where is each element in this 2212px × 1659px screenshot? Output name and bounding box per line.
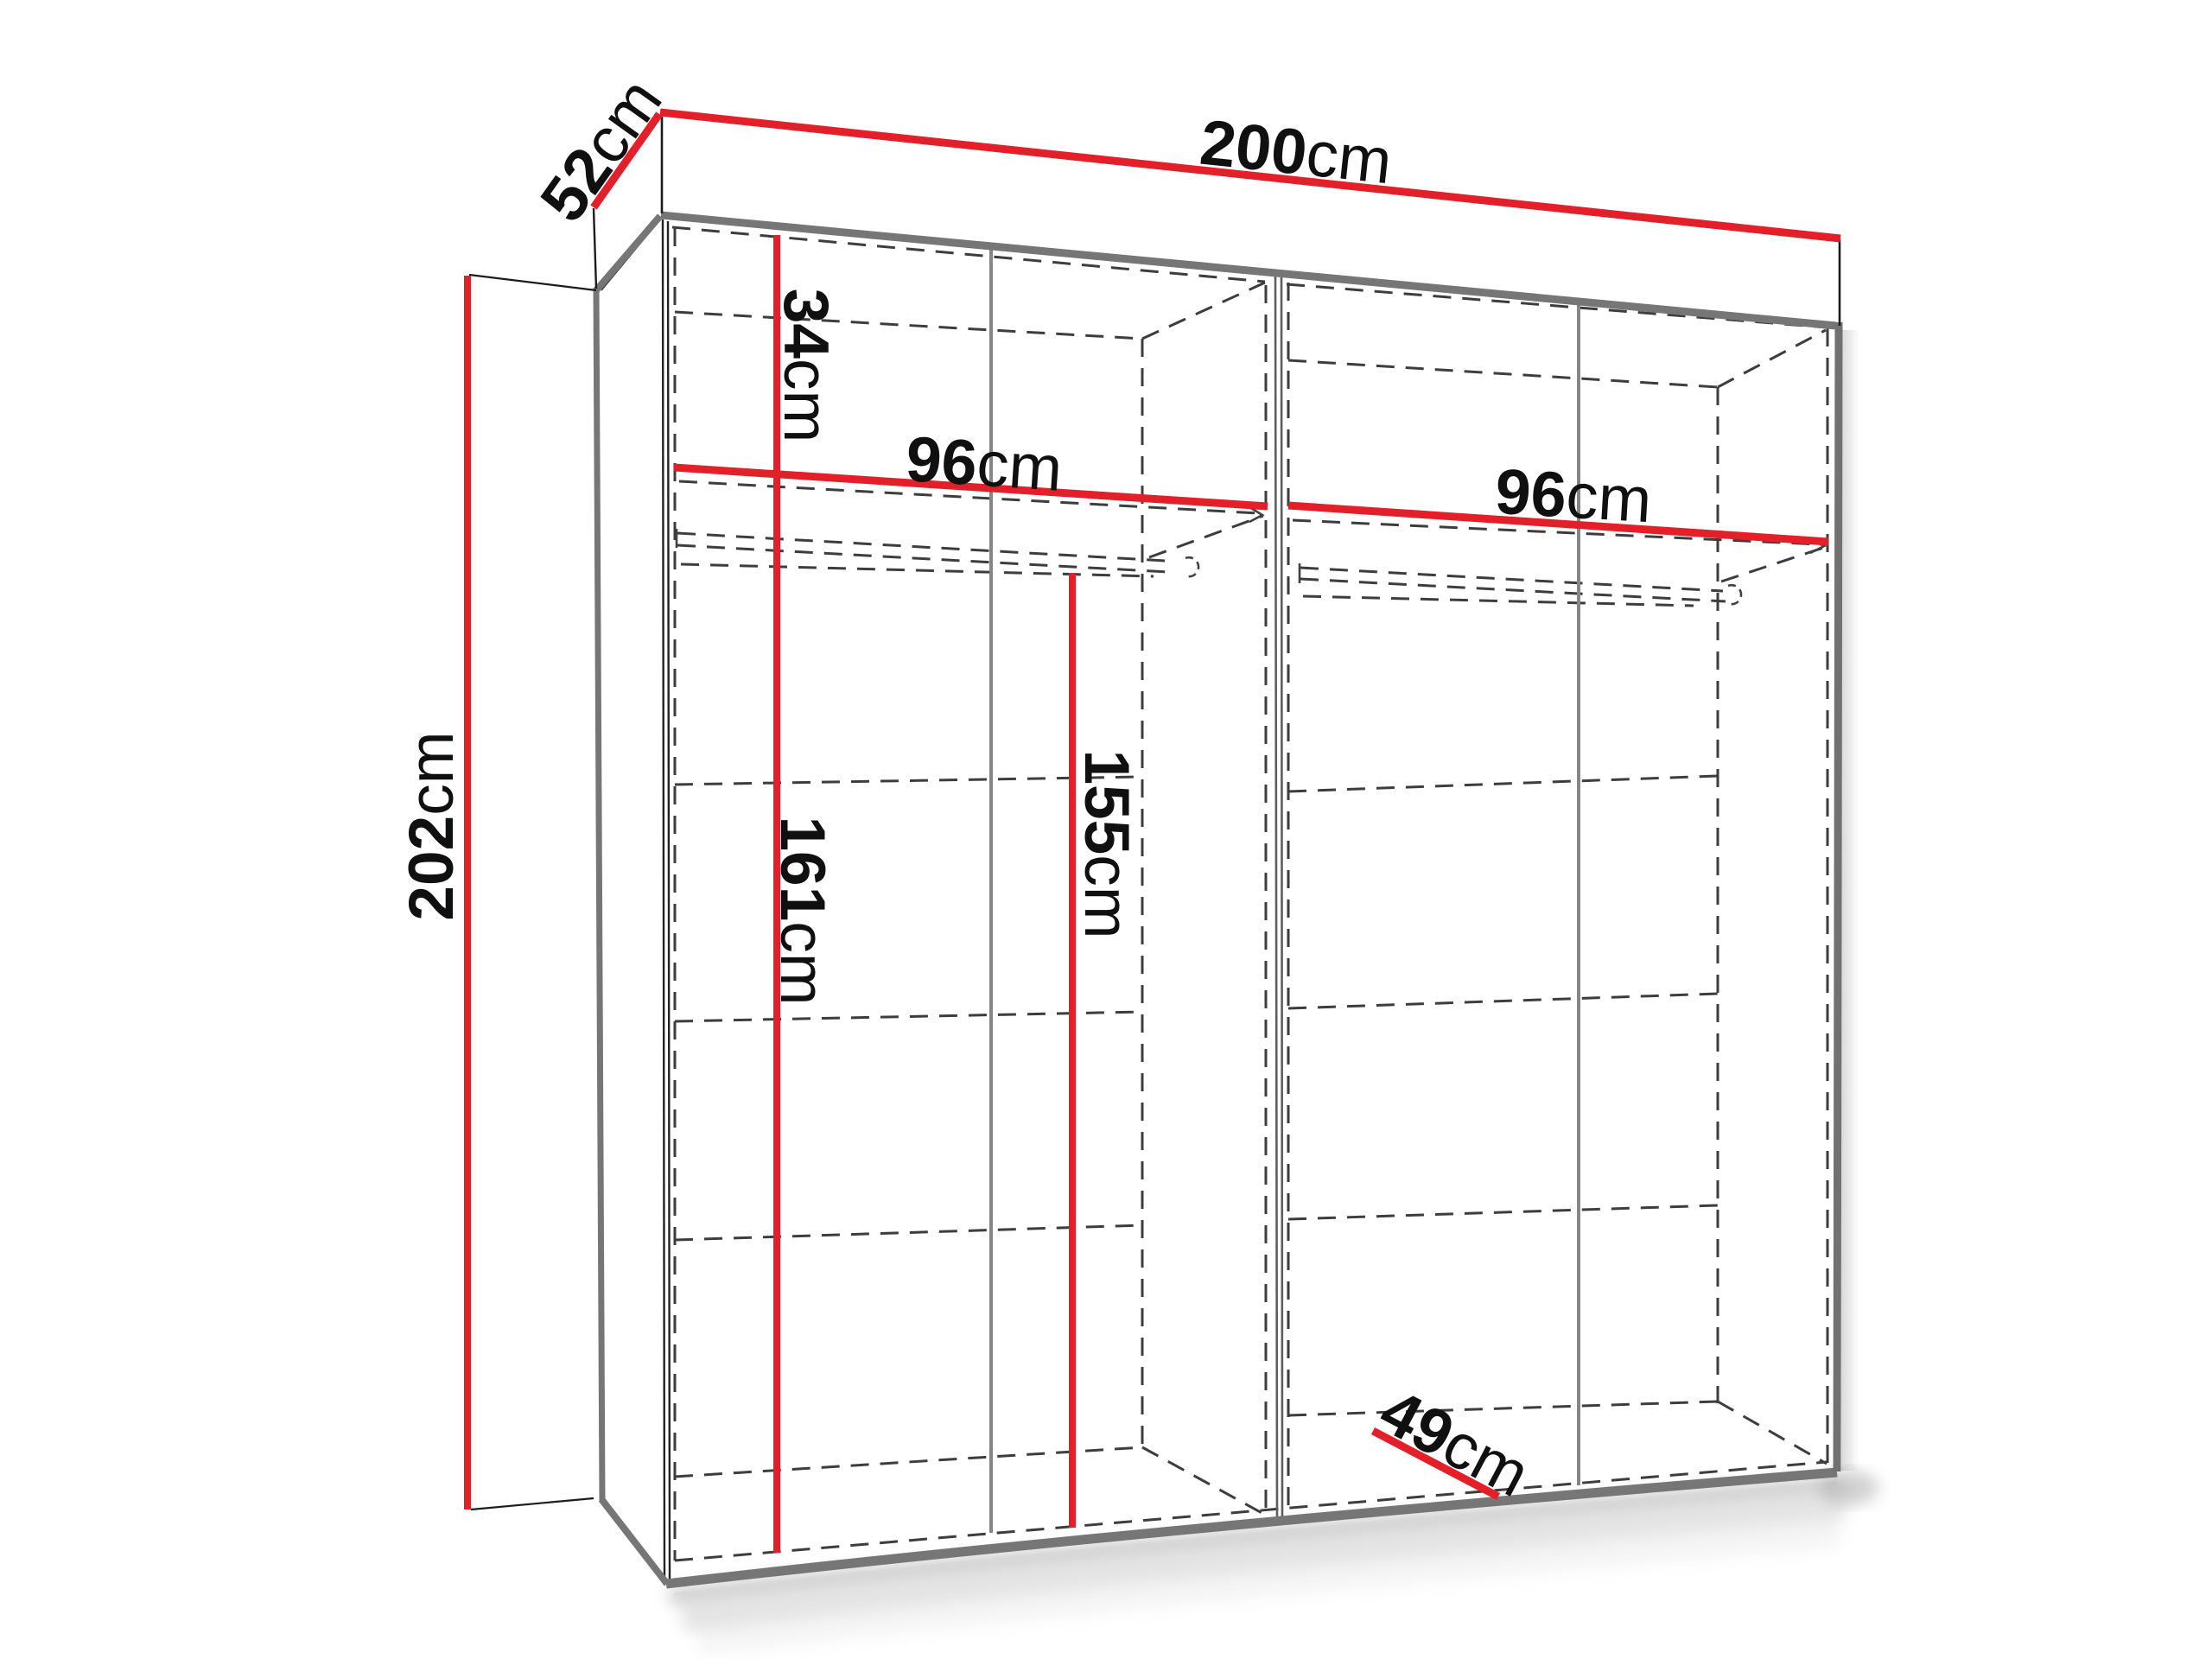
svg-text:96cm: 96cm: [904, 423, 1065, 505]
svg-text:96cm: 96cm: [1493, 455, 1654, 537]
svg-text:161cm: 161cm: [767, 816, 837, 1005]
svg-text:202cm: 202cm: [397, 731, 467, 920]
svg-text:34cm: 34cm: [771, 289, 841, 443]
svg-text:155cm: 155cm: [1071, 749, 1141, 938]
